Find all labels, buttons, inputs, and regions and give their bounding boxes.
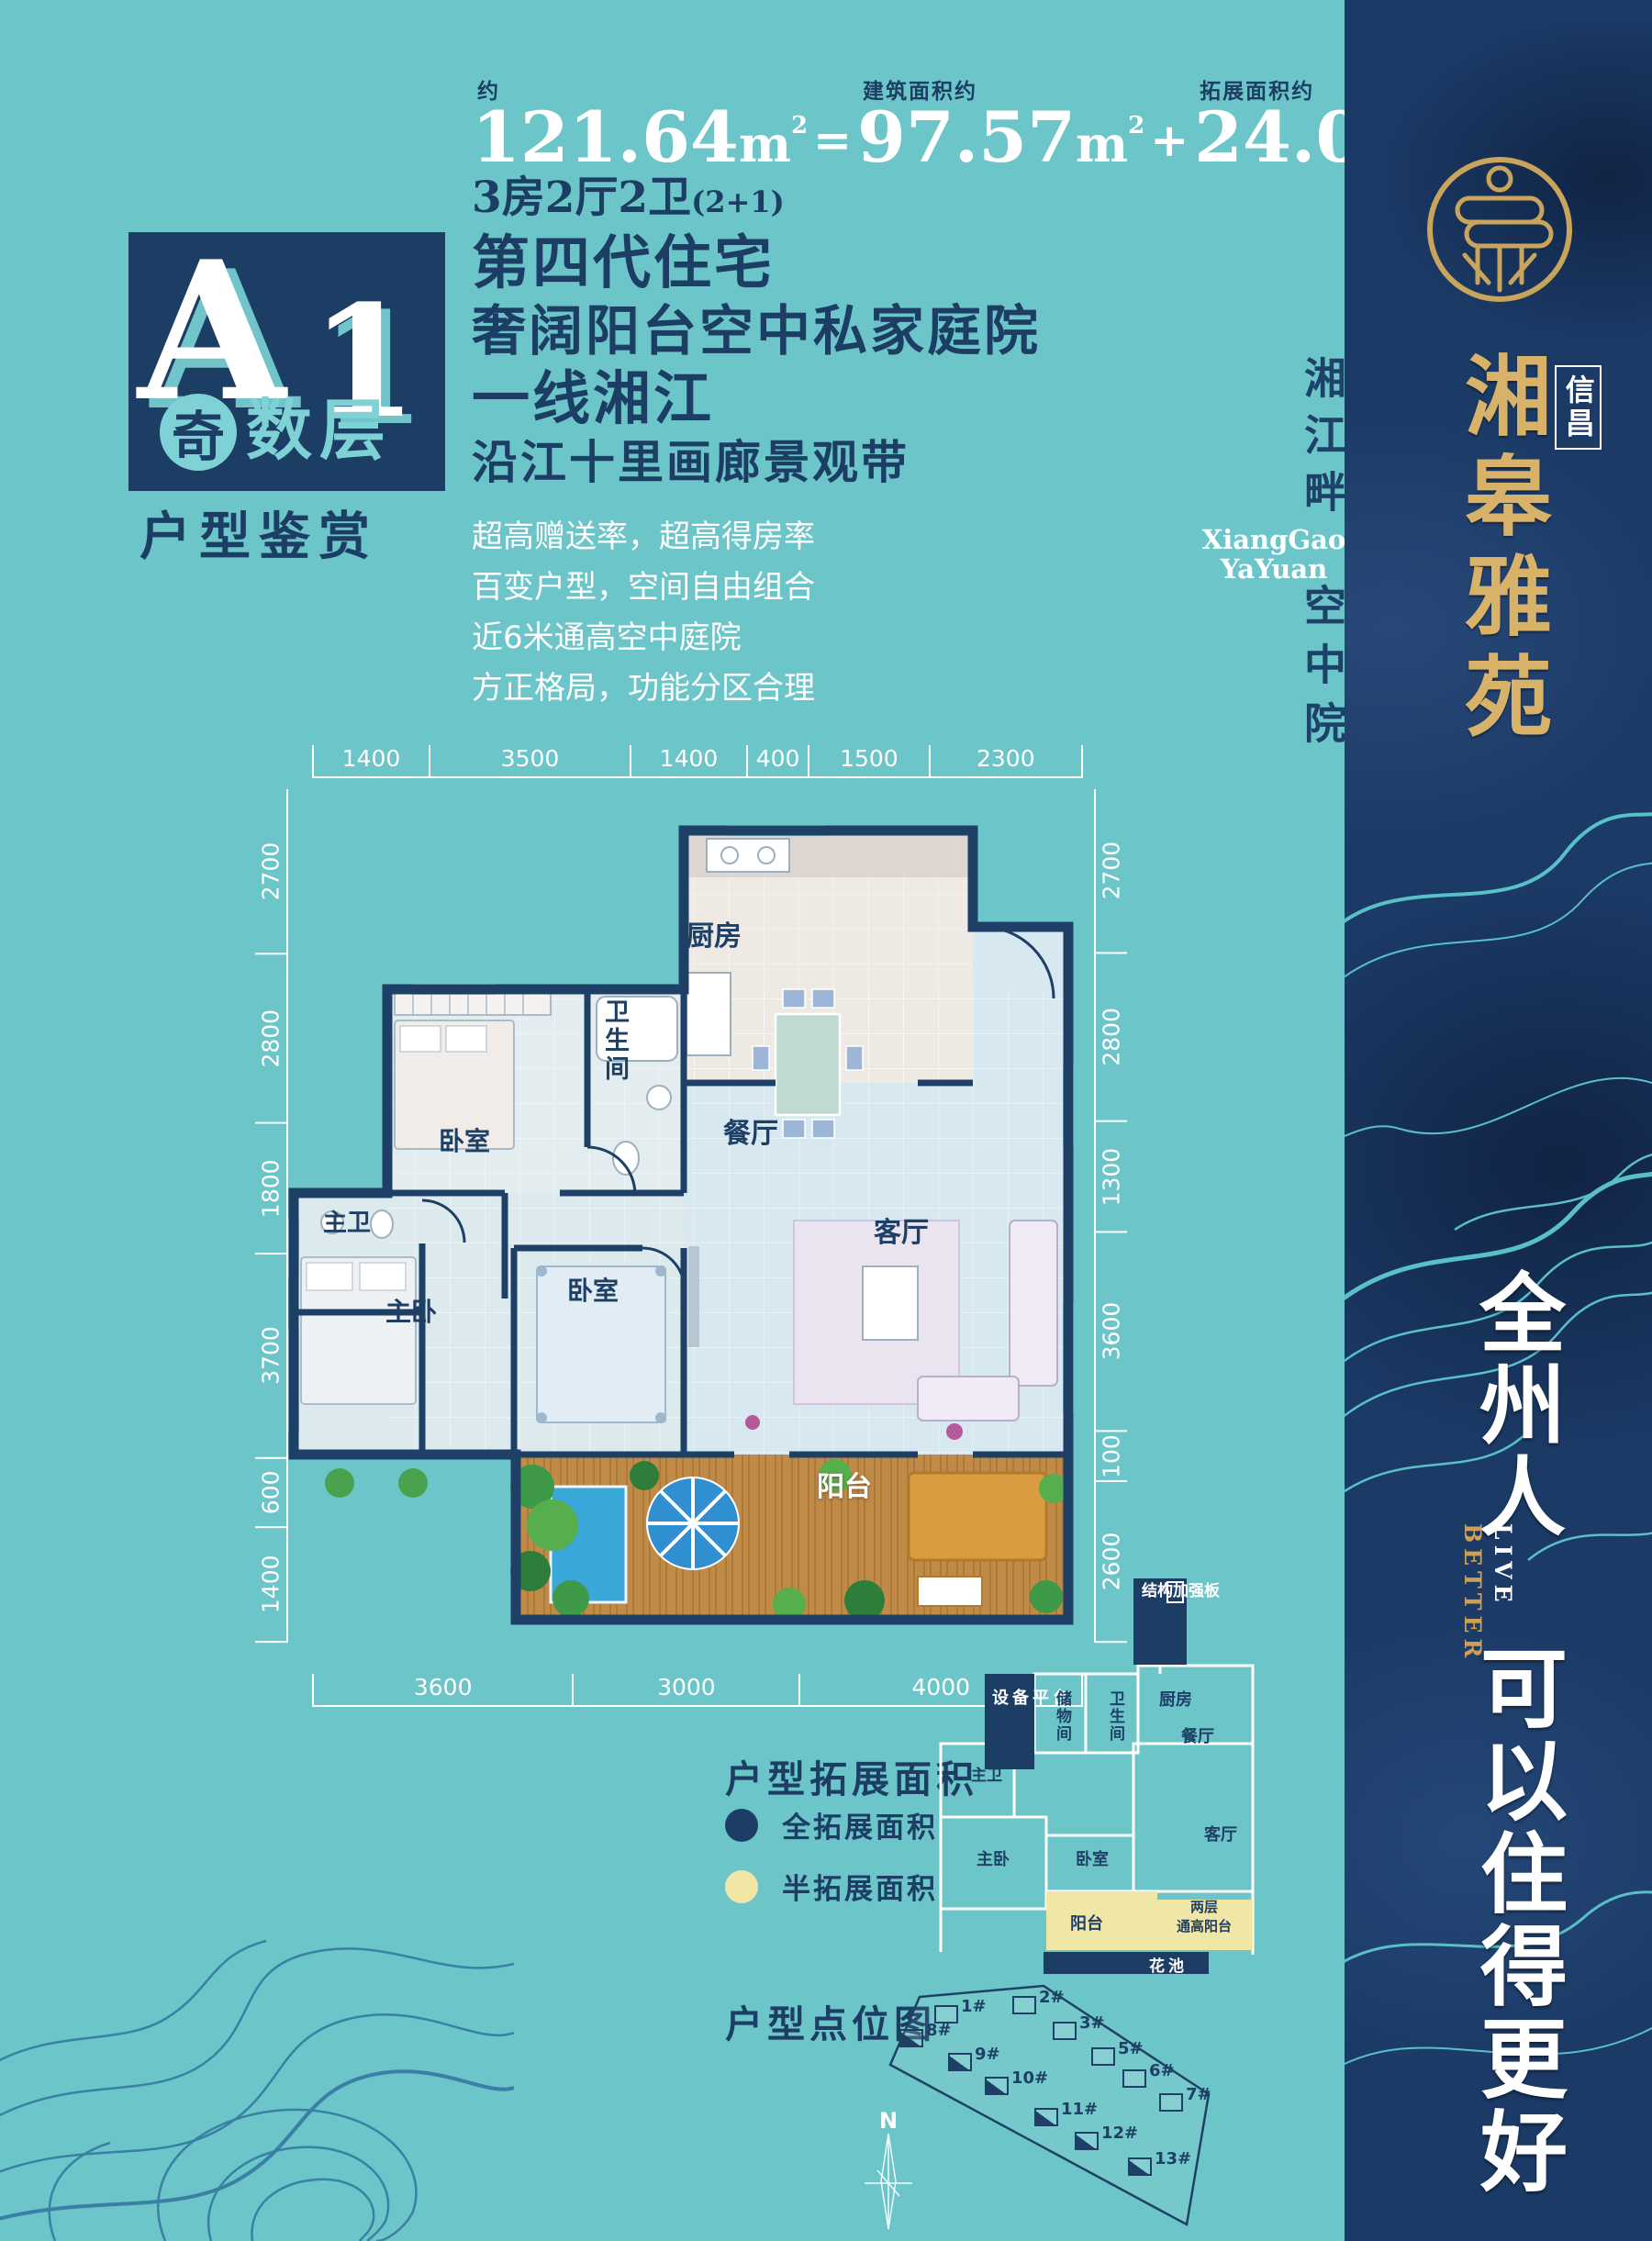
tv-cabinet	[688, 1246, 699, 1347]
building-marker: 9#	[948, 2045, 1000, 2071]
building-marker: 10#	[985, 2068, 1048, 2095]
kitchen-sink	[686, 973, 731, 1055]
dim-value: 1400	[312, 745, 429, 776]
building-footprint-icon	[1034, 2108, 1058, 2126]
building-marker: 7#	[1159, 2085, 1211, 2112]
contour-map-decoration	[0, 1679, 514, 2241]
mini-label-equipment: 设备平台	[987, 1687, 1034, 1711]
selling-point: 超高赠送率，超高得房率	[472, 512, 986, 563]
brand-developer: 信昌	[1555, 365, 1602, 450]
brand-name: 湘皋雅苑	[1453, 351, 1545, 751]
master-toilet	[371, 1210, 393, 1238]
room-label-kitchen: 厨房	[686, 913, 742, 953]
dim-value: 3600	[312, 1674, 572, 1705]
building-footprint-icon	[948, 2053, 972, 2071]
coffee-table	[863, 1266, 918, 1340]
headline-list: 第四代住宅奢阔阳台空中私家庭院一线湘江沿江十里画廊景观带	[472, 233, 1096, 496]
room-label-bedroom1: 卧室	[439, 1121, 490, 1158]
dims-top: 14003500140040015002300	[312, 745, 1083, 778]
dim-value: 2800	[1096, 953, 1127, 1122]
stove	[707, 839, 789, 872]
room-label-bedroom2: 卧室	[567, 1271, 619, 1308]
building-label: 8#	[926, 2021, 952, 2040]
headline: 一线湘江	[472, 369, 1096, 429]
planter-boxes	[325, 1468, 428, 1498]
balcony-sofa	[909, 1473, 1046, 1560]
building-marker: 6#	[1122, 2061, 1175, 2088]
building-label: 11#	[1061, 2100, 1098, 2119]
building-label: 5#	[1118, 2039, 1144, 2058]
mini-label-master-bath: 主卫	[971, 1762, 1002, 1785]
room-label-bath: 卫生间	[597, 998, 632, 1084]
selling-point: 近6米通高空中庭院	[472, 613, 986, 663]
dim-value: 100	[1096, 1433, 1127, 1482]
dim-value: 3000	[572, 1674, 798, 1705]
building-marker: 3#	[1053, 2013, 1105, 2040]
dim-value: 2300	[929, 745, 1083, 776]
mini-label-master-bedroom: 主卧	[977, 1846, 1010, 1870]
plus-sign: +	[1144, 117, 1194, 169]
building-label: 6#	[1149, 2061, 1175, 2080]
building-marker: 13#	[1128, 2149, 1191, 2176]
room-label-living: 客厅	[874, 1210, 929, 1250]
room-label-dining: 餐厅	[723, 1110, 778, 1151]
dim-value: 2700	[1096, 789, 1127, 953]
built-area-value: 97.57	[857, 106, 1076, 169]
dim-value: 400	[746, 745, 808, 776]
floor-plan	[275, 789, 1083, 1643]
room-label-master-bedroom: 主卧	[385, 1292, 437, 1329]
sofa-2	[918, 1377, 1019, 1421]
building-marker: 8#	[899, 2021, 952, 2047]
mini-label-tall-balcony: 两层 通高阳台	[1177, 1898, 1232, 1936]
total-area-group: 约 121.64m2	[472, 73, 808, 169]
building-label: 3#	[1079, 2013, 1105, 2033]
building-marker: 2#	[1012, 1988, 1065, 2014]
selling-point: 方正格局，功能分区合理	[472, 663, 986, 714]
equals-sign: =	[808, 117, 857, 169]
room-label-master-bath: 主卫	[323, 1204, 371, 1238]
total-area-value: 121.64	[472, 106, 739, 169]
built-area-group: 建筑面积约 97.57m2	[857, 73, 1144, 169]
building-footprint-icon	[1053, 2022, 1077, 2040]
legend-dot-icon	[725, 1870, 758, 1903]
headline: 沿江十里画廊景观带	[472, 439, 1096, 487]
poster-page: A 1 奇 数层 户型鉴赏 约 121.64m2 = 建筑面积约 97.57m2…	[0, 0, 1652, 2241]
building-footprint-icon	[1128, 2157, 1152, 2176]
odd-floor-chars: 数层	[246, 397, 393, 463]
building-footprint-icon	[899, 2029, 923, 2047]
slogan-bottom: 可以住得更好	[1468, 1643, 1564, 2199]
dim-value: 1300	[1096, 1122, 1127, 1232]
building-marker: 1#	[934, 1997, 987, 2024]
sofa	[1010, 1221, 1057, 1386]
latin-brand: XiangGao YaYuan	[1200, 525, 1347, 584]
selling-point: 百变户型，空间自由组合	[472, 563, 986, 613]
unit-badge: A 1 奇 数层	[128, 232, 445, 491]
building-footprint-icon	[1075, 2132, 1099, 2150]
building-footprint-icon	[1159, 2093, 1183, 2112]
mini-label-living: 客厅	[1204, 1822, 1237, 1845]
dim-value: 1400	[630, 745, 746, 776]
building-label: 12#	[1101, 2124, 1138, 2143]
legend-dot-icon	[725, 1809, 758, 1842]
building-label: 1#	[961, 1997, 987, 2016]
area-figures: 约 121.64m2 = 建筑面积约 97.57m2 + 拓展面积约 24.07…	[472, 73, 1481, 169]
mini-label-balcony: 阳台	[1070, 1911, 1103, 1934]
mini-label-dining: 餐厅	[1181, 1723, 1214, 1747]
building-marker: 12#	[1075, 2124, 1138, 2150]
building-footprint-icon	[1012, 1996, 1036, 2014]
building-footprint-icon	[985, 2077, 1009, 2095]
sitemap: N 1# 2# 3#	[844, 1959, 1257, 2241]
umbrella-icon	[647, 1477, 739, 1569]
closet	[395, 993, 551, 1015]
mini-label-bath: 卫生间	[1104, 1690, 1127, 1743]
dim-value: 1500	[808, 745, 928, 776]
mini-label-kitchen: 厨房	[1159, 1687, 1192, 1711]
dims-right: 27002800130036001002600	[1094, 789, 1127, 1643]
brand-seal-logo	[1424, 138, 1576, 335]
building-footprint-icon	[1091, 2047, 1115, 2066]
dim-value: 3600	[1096, 1232, 1127, 1432]
room-count-line: 3房2厅2卫(2+1)	[472, 162, 785, 225]
headline: 奢阔阳台空中私家庭院	[472, 303, 1096, 360]
building-marker: 11#	[1034, 2100, 1098, 2126]
odd-floor-circle: 奇	[160, 394, 237, 471]
mini-label-structure: 结构加强板	[1135, 1580, 1185, 1603]
bath-sink	[647, 1086, 671, 1109]
room-label-balcony: 阳台	[817, 1464, 872, 1504]
selling-points: 超高赠送率，超高得房率百变户型，空间自由组合近6米通高空中庭院方正格局，功能分区…	[472, 512, 986, 714]
slogan-top: 全州人	[1467, 1268, 1558, 1544]
building-markers: 1# 2# 3# 5# 6#	[844, 1959, 1257, 2241]
dining-table	[776, 1014, 840, 1115]
headline: 第四代住宅	[472, 233, 1096, 294]
building-footprint-icon	[1122, 2069, 1146, 2088]
building-label: 2#	[1039, 1988, 1065, 2007]
building-label: 7#	[1186, 2085, 1211, 2104]
building-label: 13#	[1155, 2149, 1191, 2169]
mini-label-storage: 储物间	[1051, 1690, 1074, 1743]
dim-value: 3500	[429, 745, 630, 776]
flower-accent	[946, 1423, 963, 1440]
building-label: 10#	[1011, 2068, 1048, 2088]
badge-caption: 户型鉴赏	[140, 496, 378, 570]
mini-label-bedroom: 卧室	[1076, 1846, 1109, 1870]
building-label: 9#	[975, 2045, 1000, 2064]
